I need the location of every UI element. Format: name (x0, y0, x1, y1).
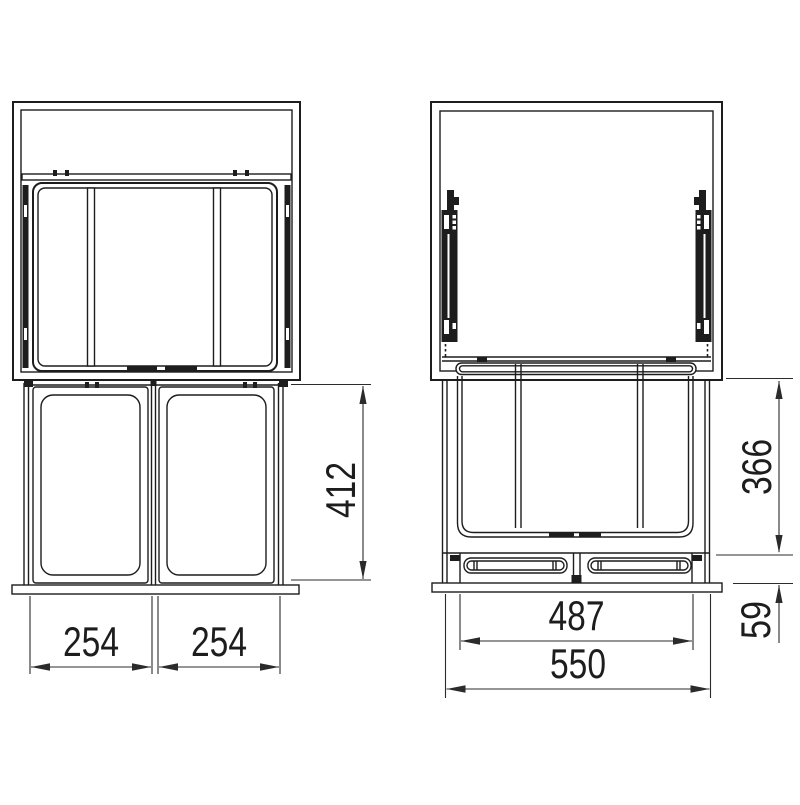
dim-label-front-height: 412 (317, 462, 364, 518)
dim-label-base-height: 59 (732, 601, 779, 639)
technical-drawing: 254 254 412 (0, 0, 800, 800)
dim-label-front-left: 254 (63, 618, 119, 665)
dim-label-front-right: 254 (191, 618, 247, 665)
front-right-rail (285, 185, 291, 368)
side-left-rail (442, 190, 460, 357)
side-cabinet-outer (431, 102, 722, 380)
front-base-plate (12, 585, 299, 594)
front-bin-left (33, 387, 148, 583)
front-cabinet-outer (13, 102, 300, 380)
side-bin-frame (442, 357, 711, 375)
front-top-rail (22, 174, 291, 180)
dim-label-inner-depth: 487 (549, 592, 605, 639)
dim-label-side-height: 366 (733, 439, 780, 495)
side-base-plate (432, 583, 722, 592)
side-dimensions: 366 59 487 550 (446, 379, 794, 699)
front-cabinet-inner (21, 110, 292, 372)
side-runner-right (588, 558, 691, 573)
dim-label-total-depth: 550 (550, 640, 606, 687)
dim-side-unit-height: 366 (716, 379, 793, 556)
dim-front-bin-right-width: 254 (158, 596, 280, 674)
front-left-rail (23, 185, 29, 368)
dim-front-bin-left-width: 254 (30, 596, 152, 674)
drawing-canvas: 254 254 412 (0, 0, 800, 800)
dim-side-base-height: 59 (732, 584, 793, 644)
side-cabinet-inner (440, 111, 713, 371)
side-view (431, 102, 722, 592)
side-carriage (443, 553, 710, 583)
side-runner-left (464, 558, 567, 573)
front-bin-frame (33, 183, 277, 371)
front-bin-right (159, 387, 274, 583)
front-view (12, 102, 300, 594)
side-bin (458, 364, 694, 538)
dim-front-unit-height: 412 (291, 385, 371, 581)
side-right-rail (694, 190, 712, 357)
